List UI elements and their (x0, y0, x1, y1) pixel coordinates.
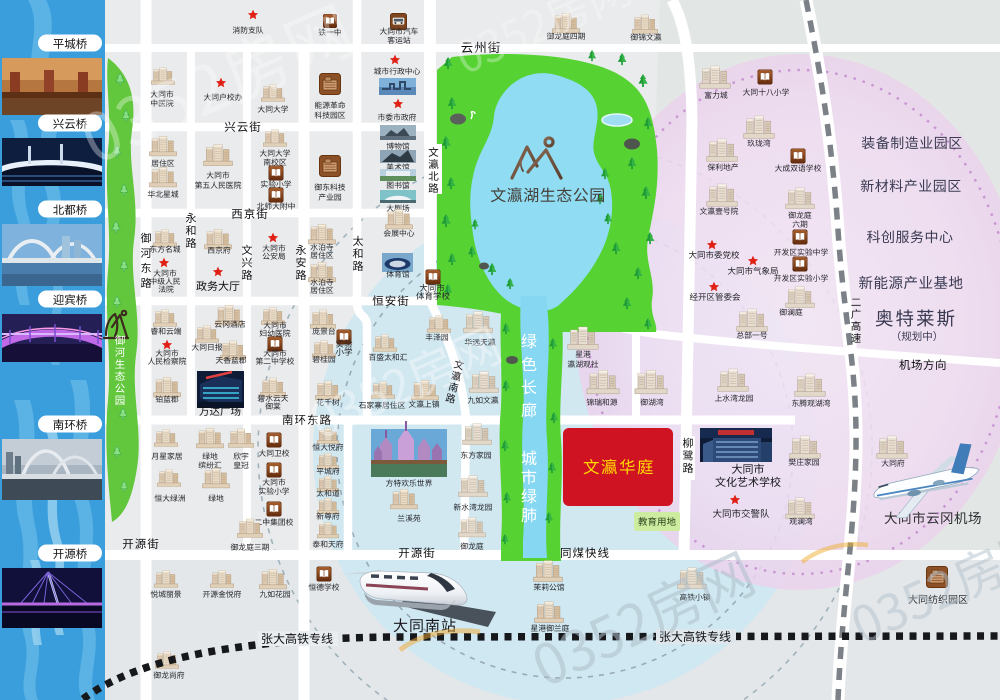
svg-text:北师大附中: 北师大附中 (257, 201, 296, 212)
svg-text:上水湾龙园: 上水湾龙园 (715, 393, 754, 404)
svg-text:华北星城: 华北星城 (147, 189, 178, 200)
svg-text:二中集团校: 二中集团校 (255, 517, 294, 528)
svg-text:东腾观湖湾: 东腾观湖湾 (792, 398, 831, 409)
svg-text:文化艺术学校: 文化艺术学校 (715, 474, 781, 490)
svg-text:城市行政中心: 城市行政中心 (374, 66, 421, 77)
svg-text:人民检察院: 人民检察院 (148, 356, 187, 367)
svg-text:观澜湾: 观澜湾 (789, 516, 813, 527)
svg-text:西京府: 西京府 (207, 245, 231, 256)
svg-text:恒德学校: 恒德学校 (308, 582, 339, 593)
svg-text:九如花园: 九如花园 (259, 589, 290, 600)
svg-text:开发区实验小学: 开发区实验小学 (774, 273, 829, 284)
svg-text:张大高铁专线: 张大高铁专线 (261, 630, 333, 647)
svg-text:装备制造业园区: 装备制造业园区 (861, 133, 963, 153)
svg-text:路: 路 (428, 181, 439, 196)
svg-text:南环桥: 南环桥 (53, 417, 88, 433)
svg-text:大同市委党校: 大同市委党校 (688, 249, 740, 261)
svg-text:第二中学校: 第二中学校 (256, 356, 295, 367)
svg-text:大同市交警队: 大同市交警队 (712, 506, 770, 520)
svg-text:会展中心: 会展中心 (383, 228, 414, 239)
svg-text:新材料产业园区: 新材料产业园区 (860, 176, 962, 196)
svg-text:总部一号: 总部一号 (736, 330, 767, 341)
svg-text:平城府: 平城府 (316, 466, 340, 477)
svg-text:锦瑞和源: 锦瑞和源 (586, 397, 617, 408)
svg-text:科技园区: 科技园区 (314, 110, 345, 121)
svg-text:路: 路 (186, 235, 197, 251)
svg-text:保利地产: 保利地产 (707, 162, 738, 173)
svg-text:绿地: 绿地 (208, 493, 224, 504)
svg-text:东: 东 (141, 260, 152, 276)
svg-text:（规划中）: （规划中） (891, 329, 944, 344)
svg-text:大同府: 大同府 (881, 458, 905, 469)
svg-text:东方家园: 东方家园 (460, 450, 491, 461)
svg-text:新尊府: 新尊府 (316, 511, 340, 522)
svg-text:科创服务中心: 科创服务中心 (867, 227, 954, 247)
svg-text:开源街: 开源街 (122, 536, 160, 552)
svg-text:六期: 六期 (792, 219, 808, 230)
svg-text:碧桂园: 碧桂园 (312, 354, 336, 365)
svg-text:教育用地: 教育用地 (638, 514, 677, 528)
svg-text:睿和云端: 睿和云端 (150, 326, 181, 337)
svg-text:御龙庭三期: 御龙庭三期 (231, 542, 270, 553)
svg-text:御龙尚府: 御龙尚府 (153, 670, 184, 681)
svg-text:万达广场: 万达广场 (199, 404, 241, 419)
svg-text:市委市政府: 市委市政府 (378, 112, 417, 123)
svg-text:开源街: 开源街 (398, 545, 436, 561)
svg-text:茉莉公馆: 茉莉公馆 (533, 582, 564, 593)
svg-text:瀛湖观社: 瀛湖观社 (567, 359, 598, 370)
svg-text:大成双语学校: 大成双语学校 (775, 163, 822, 174)
svg-text:绿: 绿 (521, 328, 537, 352)
svg-text:速: 速 (851, 331, 862, 346)
svg-text:产业园: 产业园 (318, 192, 342, 203)
svg-text:平城桥: 平城桥 (53, 36, 88, 52)
svg-text:图书馆: 图书馆 (386, 180, 410, 191)
svg-text:开源金悦府: 开源金悦府 (203, 589, 242, 600)
svg-text:新水湾龙园: 新水湾龙园 (454, 502, 493, 513)
svg-text:公安局: 公安局 (262, 251, 286, 262)
svg-text:客运站: 客运站 (387, 35, 411, 46)
svg-text:政务大厅: 政务大厅 (196, 278, 240, 294)
svg-text:太和道: 太和道 (316, 488, 340, 499)
svg-text:文瀛湖生态公园: 文瀛湖生态公园 (490, 182, 606, 206)
svg-text:御澜庭: 御澜庭 (779, 307, 803, 318)
svg-text:悦城丽景: 悦城丽景 (150, 589, 181, 600)
svg-text:开发区实验中学: 开发区实验中学 (774, 247, 829, 258)
svg-text:天香蓝郡: 天香蓝郡 (215, 355, 246, 366)
svg-text:第五人民医院: 第五人民医院 (195, 180, 242, 191)
svg-text:同煤快线: 同煤快线 (560, 545, 610, 561)
svg-text:北都桥: 北都桥 (53, 202, 88, 218)
svg-text:新能源产业基地: 新能源产业基地 (859, 272, 964, 293)
svg-text:长: 长 (521, 374, 537, 398)
svg-text:恒大绿洲: 恒大绿洲 (154, 493, 185, 504)
svg-text:园: 园 (115, 393, 126, 408)
svg-text:路: 路 (296, 267, 307, 283)
svg-text:御湖湾: 御湖湾 (640, 397, 664, 408)
svg-text:御棠: 御棠 (265, 401, 281, 412)
svg-text:玖珑湾: 玖珑湾 (747, 138, 771, 149)
svg-text:迎宾桥: 迎宾桥 (53, 292, 88, 308)
svg-text:富力城: 富力城 (704, 90, 728, 101)
svg-text:月星家居: 月星家居 (151, 451, 182, 462)
svg-text:体育学校: 体育学校 (416, 290, 451, 302)
svg-text:大同十八小学: 大同十八小学 (743, 87, 790, 98)
svg-text:实验小学: 实验小学 (258, 486, 289, 497)
svg-text:路: 路 (353, 258, 364, 274)
svg-text:法院: 法院 (158, 284, 174, 295)
svg-text:路: 路 (242, 267, 253, 283)
svg-text:大同市气象局: 大同市气象局 (727, 265, 778, 277)
svg-text:九如文瀛: 九如文瀛 (467, 395, 498, 406)
svg-text:居住区: 居住区 (310, 285, 334, 296)
svg-text:小学: 小学 (335, 346, 353, 358)
svg-text:经开区管委会: 经开区管委会 (689, 291, 741, 303)
svg-text:廊: 廊 (521, 397, 537, 421)
svg-text:云冈酒店: 云冈酒店 (214, 319, 245, 330)
svg-text:机场方向: 机场方向 (899, 357, 947, 373)
svg-text:樊庄家园: 樊庄家园 (788, 457, 819, 468)
svg-text:泰和天府: 泰和天府 (312, 539, 343, 550)
svg-text:御龙庭: 御龙庭 (460, 541, 484, 552)
svg-text:恒安街: 恒安街 (372, 293, 410, 309)
svg-text:体育馆: 体育馆 (386, 269, 410, 280)
svg-text:色: 色 (521, 351, 537, 375)
svg-text:大同卫校: 大同卫校 (258, 448, 289, 459)
svg-text:肺: 肺 (521, 502, 537, 526)
svg-text:东方名城: 东方名城 (149, 244, 180, 255)
svg-text:兰溪苑: 兰溪苑 (397, 513, 421, 524)
svg-text:居住区: 居住区 (310, 250, 334, 261)
svg-text:奥特莱斯: 奥特莱斯 (875, 305, 957, 331)
svg-text:开源桥: 开源桥 (53, 546, 88, 562)
svg-text:方特欢乐世界: 方特欢乐世界 (386, 478, 433, 489)
svg-text:皇冠: 皇冠 (233, 460, 249, 471)
svg-text:大同日报: 大同日报 (191, 342, 222, 353)
svg-text:铂蓝郡: 铂蓝郡 (155, 394, 179, 405)
svg-text:御锦文瀛: 御锦文瀛 (630, 32, 661, 43)
svg-text:文瀛壹号院: 文瀛壹号院 (700, 206, 739, 217)
svg-text:庞景台: 庞景台 (312, 326, 336, 337)
svg-text:文瀛华庭: 文瀛华庭 (583, 454, 655, 478)
svg-text:路: 路 (683, 460, 694, 476)
